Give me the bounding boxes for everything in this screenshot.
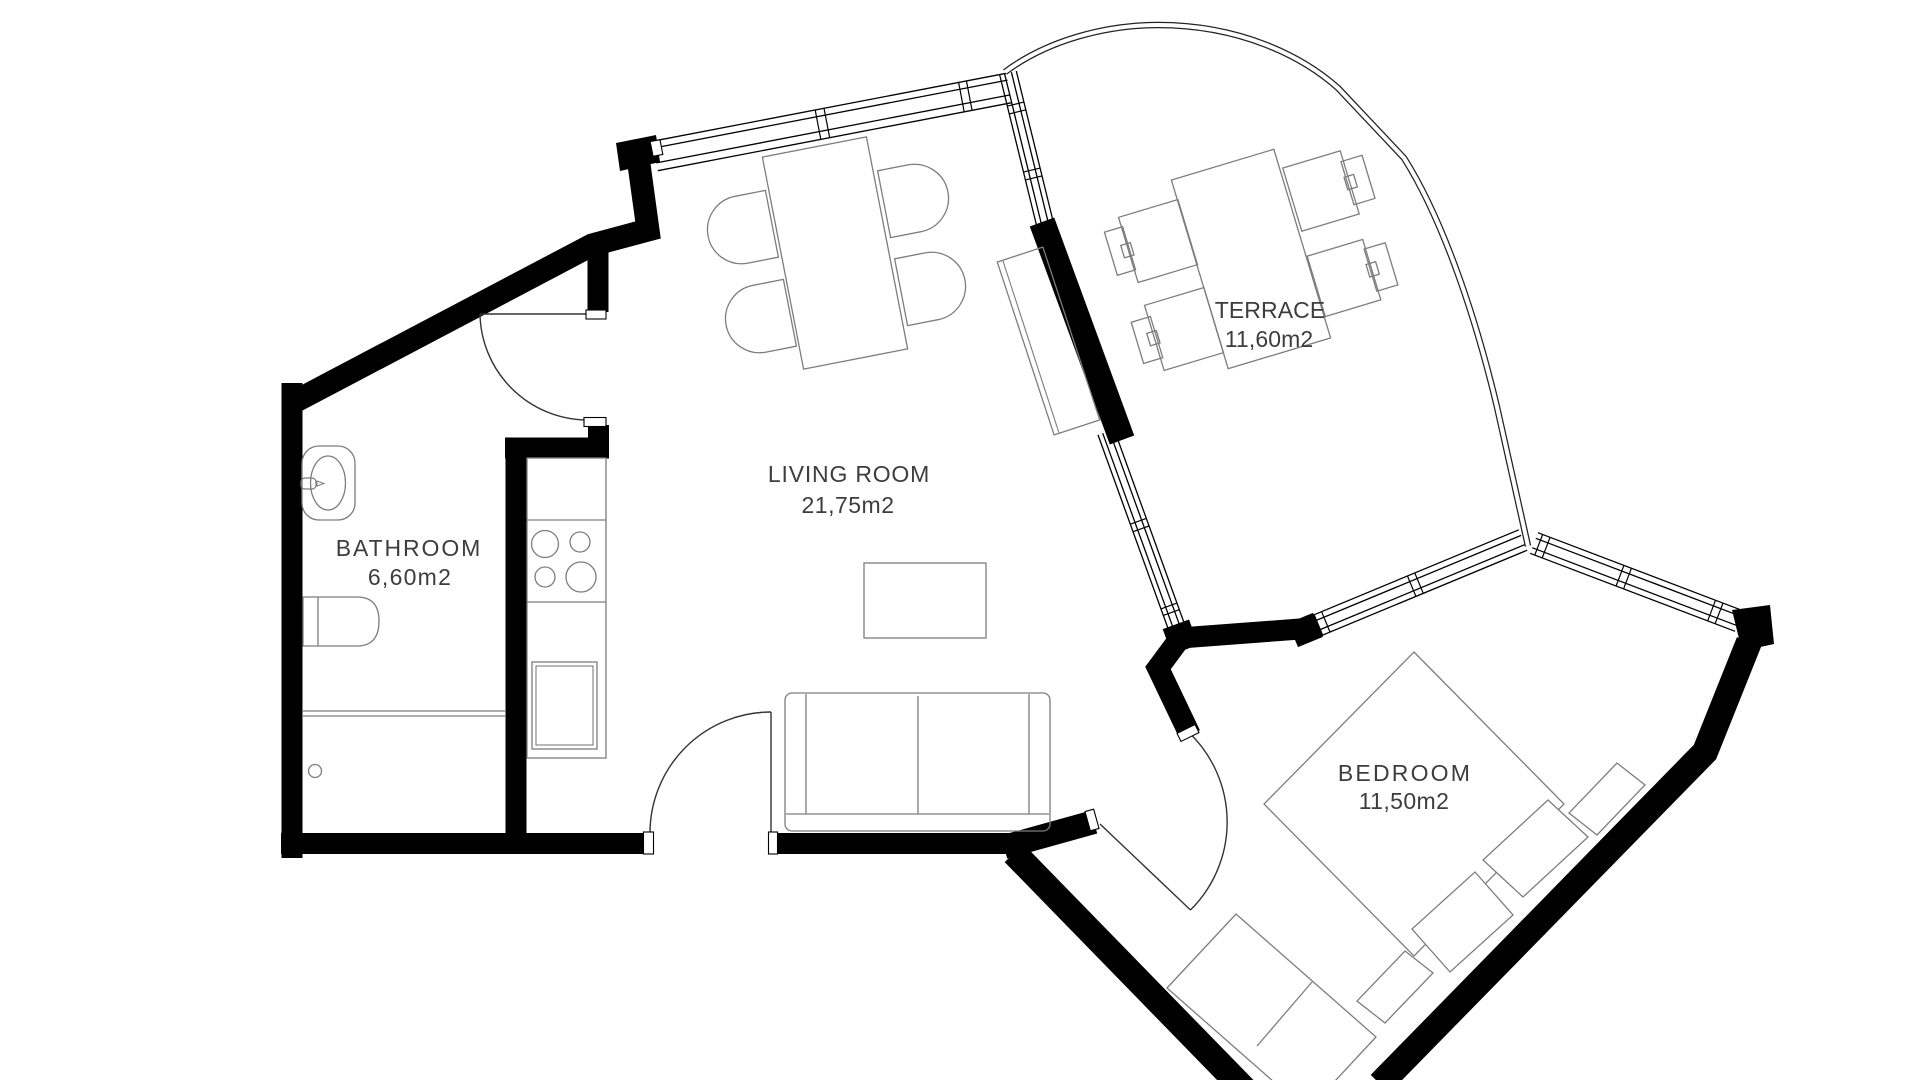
- svg-text:21,75m2: 21,75m2: [801, 492, 894, 518]
- svg-text:6,60m2: 6,60m2: [368, 564, 452, 590]
- svg-text:BEDROOM: BEDROOM: [1338, 760, 1472, 786]
- svg-text:TERRACE: TERRACE: [1215, 297, 1326, 323]
- svg-text:11,50m2: 11,50m2: [1359, 788, 1450, 814]
- svg-text:11,60m2: 11,60m2: [1225, 326, 1314, 352]
- svg-text:BATHROOM: BATHROOM: [336, 535, 482, 561]
- svg-text:LIVING ROOM: LIVING ROOM: [768, 461, 930, 487]
